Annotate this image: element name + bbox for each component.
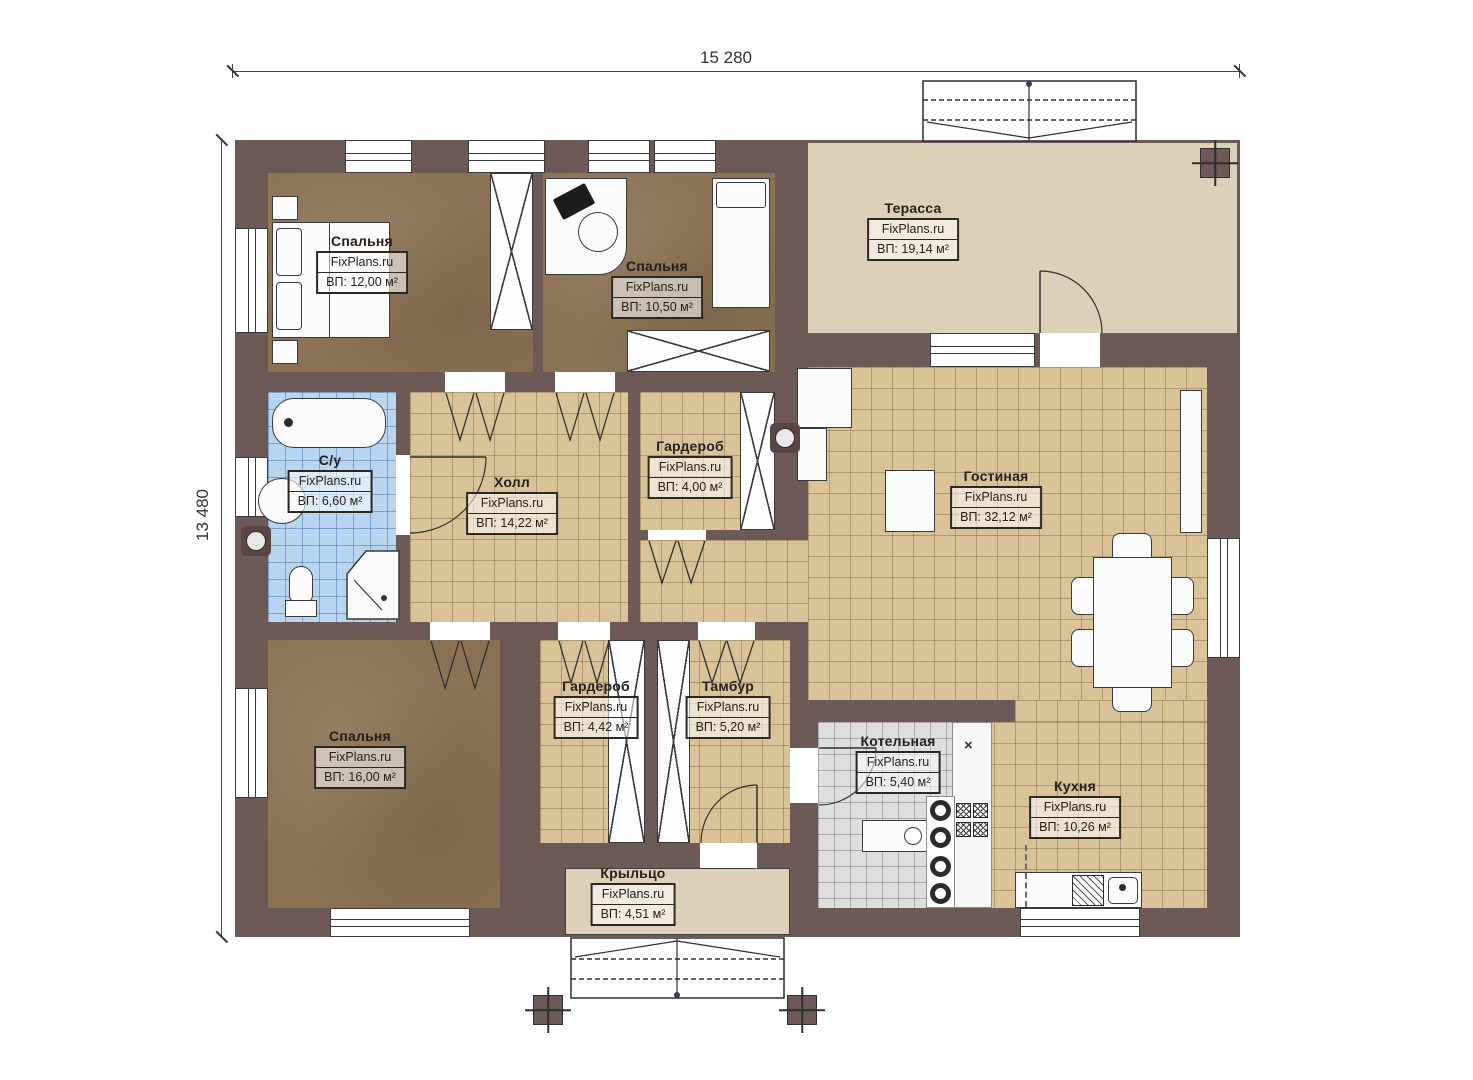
dimension-height: 13 480 [193,470,213,560]
room-info-box: FixPlans.ru ВП: 12,00 м² [316,251,408,294]
post [533,995,563,1025]
room-info-box: FixPlans.ru ВП: 4,51 м² [591,883,676,926]
room-label-boiler-room: Котельная FixPlans.ru ВП: 5,40 м² [856,733,941,794]
window [654,140,716,173]
room-name: Спальня [611,258,703,274]
dining-chair [1071,577,1095,615]
dining-table [1093,557,1172,688]
room-label-terrace: Терасса FixPlans.ru ВП: 19,14 м² [867,200,959,261]
manifold-valve [930,856,951,877]
room-name: Крыльцо [591,865,676,881]
dining-chair [1170,577,1194,615]
watermark-text: FixPlans.ru [468,494,556,513]
room-label-wardrobe-top: Гардероб FixPlans.ru ВП: 4,00 м² [648,438,733,499]
dining-chair [1112,533,1152,559]
room-name: Гостиная [950,468,1042,484]
door-gap [558,622,610,640]
watermark-text: FixPlans.ru [688,698,769,717]
room-name: Терасса [867,200,959,216]
stairs-bottom [570,937,785,999]
room-name: Гардероб [554,678,639,694]
room-info-box: FixPlans.ru ВП: 4,00 м² [648,456,733,499]
bathtub-faucet [284,418,293,427]
watermark-text: FixPlans.ru [869,220,957,239]
zone-divider [1025,845,1027,907]
room-info-box: FixPlans.ru ВП: 4,42 м² [554,696,639,739]
window [930,333,1035,367]
door-gap [1040,333,1100,367]
wardrobe [490,173,533,330]
room-name: Спальня [316,233,408,249]
watermark-text: FixPlans.ru [318,253,406,272]
dining-chair [1170,629,1194,667]
manifold-valve [930,827,951,848]
room-name: Спальня [314,728,406,744]
room-info-box: FixPlans.ru ВП: 5,40 м² [856,751,941,794]
window [1020,908,1140,937]
dining-chair [1071,629,1095,667]
manifold-valve [930,883,951,904]
room-info-box: FixPlans.ru ВП: 14,22 м² [466,492,558,535]
sofa [797,368,852,428]
door-fold [445,392,505,442]
room-area: ВП: 14,22 м² [468,513,556,533]
toilet [289,566,313,604]
pillow [276,282,302,330]
dining-chair [1112,686,1152,712]
door-gap [790,748,818,803]
watermark-text: FixPlans.ru [593,885,674,904]
door-fold [555,392,615,442]
dimension-width: 15 280 [700,48,752,68]
pillow [716,182,766,208]
room-name: Гардероб [648,438,733,454]
room-label-bedroom-2: Спальня FixPlans.ru ВП: 10,50 м² [611,258,703,319]
shower [346,550,400,620]
door-gap [700,843,757,868]
window [235,688,268,798]
watermark-text: FixPlans.ru [290,472,371,491]
door-fold [430,640,490,690]
vent [770,423,800,453]
door-gap [555,372,615,392]
room-area: ВП: 4,00 м² [650,477,731,497]
room-label-porch: Крыльцо FixPlans.ru ВП: 4,51 м² [591,865,676,926]
window [345,140,412,173]
room-label-living-room: Гостиная FixPlans.ru ВП: 32,12 м² [950,468,1042,529]
watermark-text: FixPlans.ru [316,748,404,767]
room-name: Кухня [1029,778,1121,794]
room-name: Холл [466,474,558,490]
window [588,140,650,173]
door-swing [699,783,759,845]
room-name: С/у [288,452,373,468]
room-area: ВП: 4,51 м² [593,904,674,924]
watermark-text: FixPlans.ru [556,698,637,717]
room-area: ВП: 12,00 м² [318,272,406,292]
hob-burner [973,822,988,837]
boiler-dial [904,827,922,845]
door-gap [445,372,505,392]
post [1200,148,1230,178]
room-info-box: FixPlans.ru ВП: 32,12 м² [950,486,1042,529]
door-swing [1038,269,1102,335]
wardrobe [608,640,645,843]
pillow [276,228,302,276]
watermark-text: FixPlans.ru [613,278,701,297]
room-info-box: FixPlans.ru ВП: 5,20 м² [686,696,771,739]
room-info-box: FixPlans.ru ВП: 6,60 м² [288,470,373,513]
sink-faucet [1119,884,1126,891]
room-label-bedroom-3: Спальня FixPlans.ru ВП: 16,00 м² [314,728,406,789]
floor-plan: × [0,0,1473,1080]
wardrobe [657,640,690,843]
watermark-text: FixPlans.ru [1031,798,1119,817]
room-name: Тамбур [686,678,771,694]
living-kitchen-pass [1015,700,1207,722]
window [235,228,268,333]
post [787,995,817,1025]
watermark-text: FixPlans.ru [650,458,731,477]
door-gap [430,622,490,640]
hob-burner [956,822,971,837]
watermark-text: FixPlans.ru [952,488,1040,507]
door-gap [648,530,706,540]
nightstand [272,340,298,364]
room-info-box: FixPlans.ru ВП: 19,14 м² [867,218,959,261]
room-label-vestibule: Тамбур FixPlans.ru ВП: 5,20 м² [686,678,771,739]
window [468,140,545,173]
sofa [797,428,827,481]
room-area: ВП: 5,20 м² [688,717,769,737]
window [1207,538,1240,658]
stairs-top [922,80,1137,142]
room-area: ВП: 4,42 м² [556,717,637,737]
watermark-text: FixPlans.ru [858,753,939,772]
room-area: ВП: 10,26 м² [1031,817,1119,837]
room-label-wardrobe-bottom: Гардероб FixPlans.ru ВП: 4,42 м² [554,678,639,739]
dimension-line-vertical [221,140,222,937]
wardrobe [627,330,770,372]
room-info-box: FixPlans.ru ВП: 10,26 м² [1029,796,1121,839]
door-gap [698,622,755,640]
room-area: ВП: 6,60 м² [290,491,371,511]
manifold-valve [930,800,951,821]
room-area: ВП: 10,50 м² [613,297,701,317]
room-area: ВП: 19,14 м² [869,239,957,259]
room-label-bedroom-1: Спальня FixPlans.ru ВП: 12,00 м² [316,233,408,294]
door-fold [648,540,706,585]
room-label-kitchen: Кухня FixPlans.ru ВП: 10,26 м² [1029,778,1121,839]
room-area: ВП: 5,40 м² [858,772,939,792]
dimension-line-horizontal [232,71,1240,72]
coffee-table [885,470,935,532]
room-info-box: FixPlans.ru ВП: 10,50 м² [611,276,703,319]
wardrobe [740,392,775,530]
toilet-tank [285,600,317,617]
room-area: ВП: 32,12 м² [952,507,1040,527]
room-name: Котельная [856,733,941,749]
hob-burner [956,803,971,818]
vent-hole [246,531,266,551]
room-info-box: FixPlans.ru ВП: 16,00 м² [314,746,406,789]
window [330,908,470,937]
dishwasher [1072,875,1104,906]
hob-burner [973,803,988,818]
tv-stand [1180,390,1202,533]
vent-hole [775,428,795,448]
vent-cross-mark: × [964,738,973,753]
nightstand [272,196,298,220]
room-label-hall: Холл FixPlans.ru ВП: 14,22 м² [466,474,558,535]
vent [241,526,271,556]
room-area: ВП: 16,00 м² [316,767,404,787]
room-label-bathroom: С/у FixPlans.ru ВП: 6,60 м² [288,452,373,513]
